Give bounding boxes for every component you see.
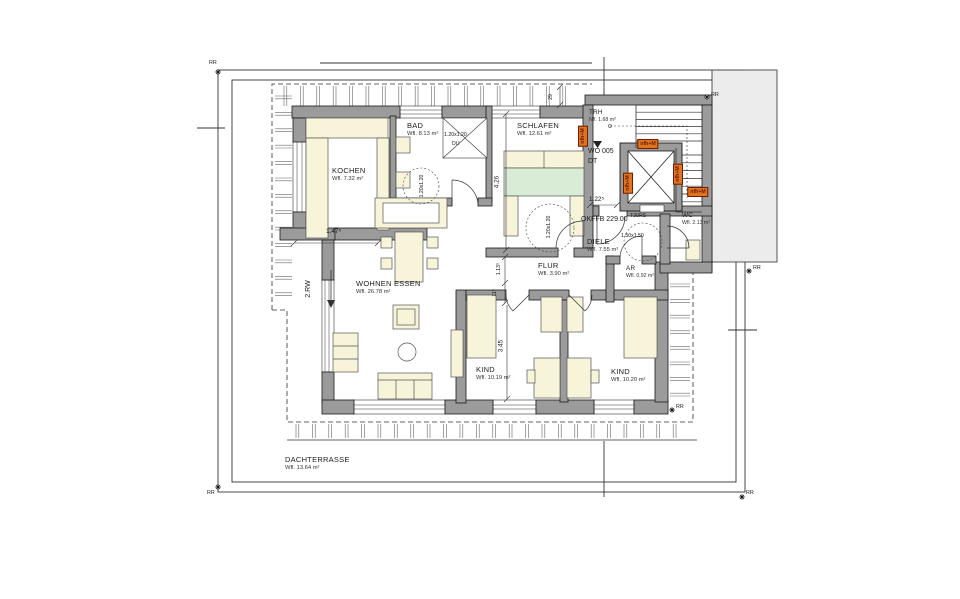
kitchen-island-top	[383, 203, 439, 223]
bed-cover	[504, 168, 584, 196]
desk	[567, 358, 591, 398]
desk-chair	[527, 370, 535, 383]
wardrobe	[541, 297, 562, 332]
floor-plan: KOCHENWfl. 7.32 m²BADWfl. 8.13 m²SCHLAFE…	[0, 0, 960, 599]
kitchen-counter-left	[306, 138, 328, 238]
sideboard	[333, 333, 358, 372]
bath-sink	[396, 137, 410, 153]
bed-side	[570, 196, 584, 236]
chair	[427, 258, 438, 269]
chair	[381, 258, 392, 269]
sofa	[378, 373, 432, 399]
entry-arrow	[593, 141, 602, 148]
chair	[381, 237, 392, 248]
neighbor-building	[712, 70, 777, 262]
desk	[534, 358, 560, 398]
kid-bed	[624, 297, 657, 358]
kid-bed	[467, 295, 496, 358]
tv-board	[451, 330, 463, 377]
shower	[443, 118, 487, 158]
dining-table	[395, 232, 423, 282]
wardrobe	[567, 297, 583, 332]
round-table	[398, 343, 416, 361]
desk-chair	[591, 370, 599, 383]
chair	[427, 237, 438, 248]
kitchen-counter-top	[306, 118, 388, 138]
plan-drawing	[0, 0, 960, 599]
toilet	[686, 240, 700, 260]
elevator-shaft	[620, 143, 682, 212]
